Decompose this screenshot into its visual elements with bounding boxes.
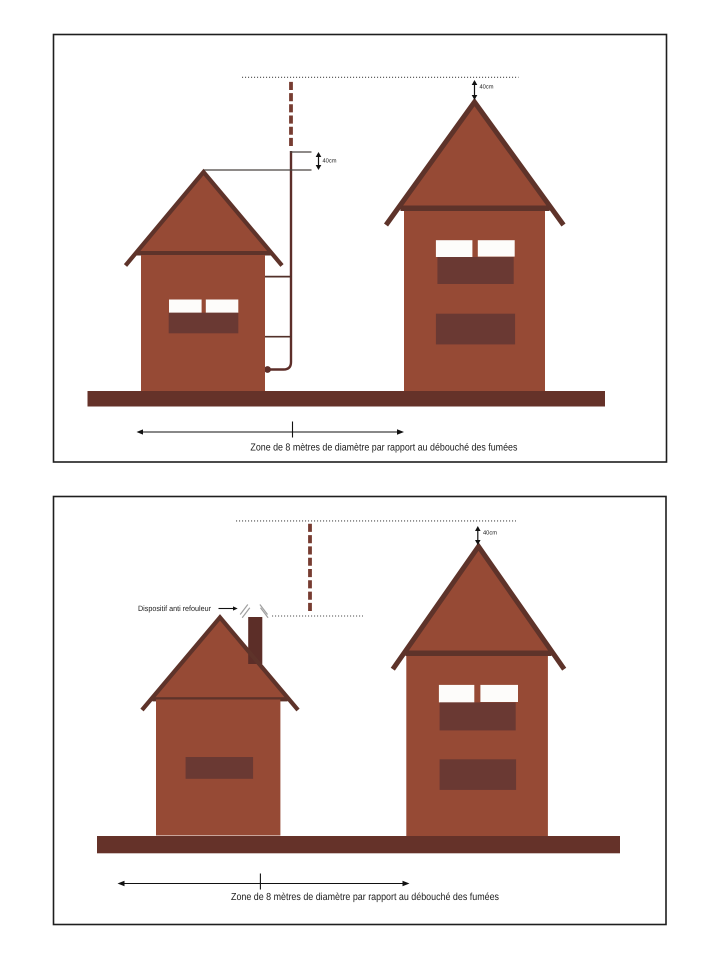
svg-text:40cm: 40cm xyxy=(323,157,337,164)
svg-text:Zone de 8 mètres de diamètre p: Zone de 8 mètres de diamètre par rapport… xyxy=(250,443,517,454)
svg-text:40cm: 40cm xyxy=(480,83,494,90)
svg-text:40cm: 40cm xyxy=(483,530,497,537)
svg-text:Dispositif anti refouleur: Dispositif anti refouleur xyxy=(138,604,211,613)
svg-text:Zone de 8 mètres de diamètre p: Zone de 8 mètres de diamètre par rapport… xyxy=(231,892,499,903)
